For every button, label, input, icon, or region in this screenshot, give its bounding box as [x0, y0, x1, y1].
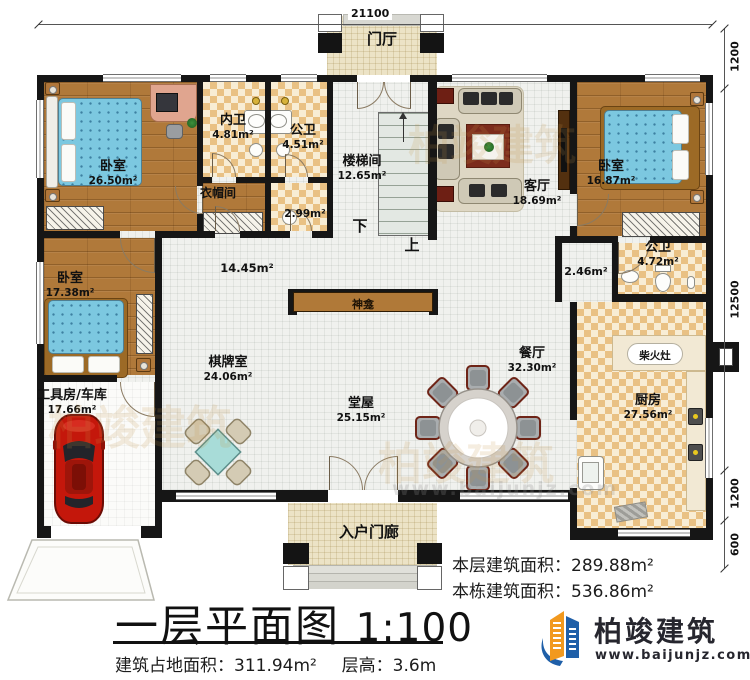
dimension-text: 1200 — [729, 41, 742, 72]
wall-segment — [612, 294, 713, 302]
room-area: 18.69m² — [505, 195, 569, 207]
window — [452, 74, 547, 82]
room-label-dining: 餐厅 32.30m² — [500, 347, 564, 374]
plant — [484, 142, 494, 152]
pillow — [52, 356, 84, 373]
sofa-cushion — [481, 92, 497, 105]
dimension-right-12500: 12500 — [729, 278, 742, 322]
room-label-kitchen: 厨房 27.56m² — [616, 394, 680, 421]
chess-table-set — [178, 412, 258, 492]
stair-direction-line — [403, 118, 404, 142]
room-label-public-bath-top: 公卫 4.51m² — [272, 124, 334, 151]
pillow — [61, 102, 76, 140]
nightstand — [690, 92, 704, 106]
room-name: 入户门廊 — [339, 523, 399, 541]
column — [318, 14, 342, 32]
dimension-right-600: 600 — [729, 523, 742, 567]
end-table — [436, 88, 454, 104]
window — [705, 418, 713, 478]
chimney-flue — [719, 348, 733, 366]
footprint-line: 建筑占地面积：311.94m² 层高：3.6m — [115, 651, 436, 676]
pillow — [672, 150, 689, 180]
building-area-value: 536.86m² — [571, 582, 654, 602]
room-name: 内卫 — [220, 113, 246, 128]
porch-step — [293, 573, 437, 581]
column — [420, 33, 444, 53]
stair-down-text: 下 — [352, 217, 367, 235]
room-area: 4.72m² — [626, 256, 690, 268]
window — [618, 529, 690, 537]
wall-segment — [155, 231, 215, 238]
plan-title: 一层平面图 1:100 — [115, 592, 473, 654]
pillow — [88, 356, 120, 373]
bed-headboard — [46, 96, 58, 188]
room-label-garage: 工具房/车库 17.66m² — [20, 389, 124, 416]
room-label-bedroom3: 卧室 17.38m² — [38, 272, 102, 299]
bed — [48, 300, 124, 354]
room-name: 客厅 — [524, 179, 550, 194]
wash-basin — [249, 143, 263, 157]
room-label-chess-room: 棋牌室 24.06m² — [196, 356, 260, 383]
room-name: 衣帽间 — [200, 186, 236, 200]
column — [417, 566, 442, 590]
dimension-text: 1200 — [729, 478, 742, 509]
storey-height-value: 3.6m — [393, 656, 437, 676]
desk-chair — [166, 124, 183, 139]
nightstand — [45, 189, 60, 202]
dimension-text: 12500 — [729, 280, 742, 318]
footprint-label: 建筑占地面积： — [115, 656, 234, 676]
dimension-line-top — [38, 24, 712, 25]
room-area: 12.65m² — [330, 170, 394, 182]
dimension-top-text: 21100 — [351, 7, 389, 20]
room-area: 24.06m² — [196, 371, 260, 383]
room-area: 14.45m² — [217, 262, 277, 275]
burner-knob — [693, 450, 698, 455]
wall-segment — [398, 490, 458, 502]
kitchen-counter — [686, 371, 706, 511]
room-area: 27.56m² — [616, 409, 680, 421]
room-label-public-bath-right: 公卫 4.72m² — [626, 241, 690, 268]
column — [283, 543, 309, 564]
tv — [561, 128, 567, 172]
pillow — [672, 114, 689, 144]
stair-down-label: 下 — [348, 218, 372, 235]
room-name: 卧室 — [598, 159, 624, 174]
wall-segment — [240, 231, 290, 238]
computer-monitor — [156, 93, 178, 112]
wall-segment — [570, 82, 577, 194]
footprint-value: 311.94m² — [234, 656, 317, 676]
room-name: 卧室 — [57, 271, 83, 286]
wall-segment — [236, 177, 285, 183]
window — [210, 74, 246, 82]
room-area: 4.81m² — [203, 129, 263, 141]
room-label-stairwell: 楼梯间 12.65m² — [330, 155, 394, 182]
room-area: 17.66m² — [20, 404, 124, 416]
stair-up-label: 上 — [400, 237, 424, 254]
column — [420, 14, 444, 32]
room-area: 32.30m² — [500, 362, 564, 374]
column — [283, 566, 309, 590]
room-name: 棋牌室 — [208, 355, 247, 370]
window — [645, 74, 700, 82]
room-label-main-hall: 堂屋 25.15m² — [329, 397, 393, 424]
floor-drain — [687, 276, 695, 289]
room-name: 餐厅 — [519, 346, 545, 361]
plant — [187, 118, 197, 128]
plan-title-text: 一层平面图 — [115, 602, 340, 652]
wall-segment — [265, 82, 271, 180]
room-label-living: 客厅 18.69m² — [505, 180, 569, 207]
dimension-top: 21100 — [348, 7, 392, 20]
room-label-porch: 入户门廊 — [319, 524, 419, 541]
room-label-inner-bath: 内卫 4.81m² — [203, 114, 263, 141]
sofa-cushion — [438, 144, 454, 159]
wall-segment — [312, 231, 333, 238]
kitchen-sink-basin — [582, 462, 599, 483]
dimension-right-1200a: 1200 — [729, 35, 742, 79]
window — [281, 74, 317, 82]
room-label-cloakroom: 衣帽间 — [188, 187, 248, 201]
room-label-foyer: 门厅 — [352, 31, 412, 48]
wall-segment — [428, 82, 437, 240]
wall-segment — [203, 177, 212, 183]
sofa-cushion — [499, 92, 513, 105]
room-area: 25.15m² — [329, 412, 393, 424]
floor-area-line: 本层建筑面积：289.88m² — [452, 551, 654, 576]
room-area: 17.38m² — [38, 287, 102, 299]
dimension-right-1200b: 1200 — [729, 472, 742, 516]
wall-segment — [37, 231, 120, 238]
column — [318, 33, 342, 53]
title-underline — [113, 641, 443, 644]
room-name: 工具房/车库 — [37, 388, 107, 403]
nightstand — [45, 82, 60, 95]
window — [460, 492, 568, 500]
wall-segment — [570, 302, 577, 420]
room-label-corridor: 2.46m² — [558, 266, 614, 279]
dimension-text: 600 — [729, 533, 742, 556]
room-name: 楼梯间 — [342, 154, 381, 169]
dimension-line-right — [724, 28, 725, 568]
stair-arrow-icon — [399, 112, 407, 119]
brand-name: 柏竣建筑 — [594, 610, 718, 650]
building-area-label: 本栋建筑面积： — [452, 582, 571, 602]
brand-website: www.baijunjz.com — [595, 648, 750, 663]
storey-height-label: 层高： — [342, 656, 393, 676]
wood-stove-label: 柴火灶 — [639, 350, 671, 362]
dining-table-set: (function(){ var g=document.getElementBy… — [414, 364, 542, 492]
faucet-knob — [252, 97, 260, 105]
wood-stove: 柴火灶 — [627, 343, 683, 365]
end-table — [436, 186, 454, 202]
floor-area-label: 本层建筑面积： — [452, 556, 571, 576]
car — [52, 412, 106, 526]
floor-plan-sheet: 神龛 — [0, 0, 750, 680]
shrine-niche: 神龛 — [293, 292, 433, 312]
faucet-knob — [281, 97, 289, 105]
floor-area-value: 289.88m² — [571, 556, 654, 576]
room-area: 26.50m² — [63, 175, 163, 187]
window — [103, 74, 181, 82]
room-label-bedroom1: 卧室 26.50m² — [63, 160, 163, 187]
window — [36, 100, 44, 178]
wall-segment — [155, 375, 162, 382]
window — [705, 103, 713, 175]
stair-up-text: 上 — [404, 236, 419, 254]
room-label-bedroom2: 卧室 16.87m² — [579, 160, 643, 187]
room-name: 卧室 — [100, 159, 126, 174]
burner-knob — [693, 414, 698, 419]
brand-logo-icon — [538, 606, 588, 668]
room-name: 门厅 — [367, 30, 397, 48]
wall-segment — [555, 236, 618, 243]
room-area: 2.99m² — [277, 208, 333, 220]
sofa-cushion — [469, 184, 485, 197]
wardrobe — [136, 294, 153, 354]
room-name: 厨房 — [635, 393, 661, 408]
building-area-line: 本栋建筑面积：536.86m² — [452, 577, 654, 602]
plan-scale: 1:100 — [356, 606, 473, 651]
wardrobe — [46, 206, 104, 230]
wall-segment — [37, 375, 117, 382]
room-area: 2.46m² — [558, 266, 614, 279]
room-name: 公卫 — [290, 123, 316, 138]
room-label-hallway: 14.45m² — [217, 262, 277, 275]
sofa-cushion — [438, 124, 454, 139]
room-name: 公卫 — [645, 240, 671, 255]
room-label-washroom: 2.99m² — [277, 208, 333, 220]
wall-segment — [37, 526, 51, 538]
wall-segment — [155, 238, 162, 538]
room-name: 堂屋 — [348, 396, 374, 411]
room-area: 16.87m² — [579, 175, 643, 187]
nightstand — [136, 358, 151, 372]
porch-step — [293, 581, 437, 589]
porch-step — [293, 565, 437, 573]
door-opening — [357, 75, 410, 82]
wall-segment — [265, 180, 271, 238]
room-area: 4.51m² — [272, 139, 334, 151]
sofa-cushion — [463, 92, 479, 105]
nightstand — [690, 190, 704, 204]
window — [176, 492, 276, 500]
wardrobe — [622, 212, 700, 237]
shrine-label: 神龛 — [352, 298, 374, 311]
column — [417, 543, 442, 564]
